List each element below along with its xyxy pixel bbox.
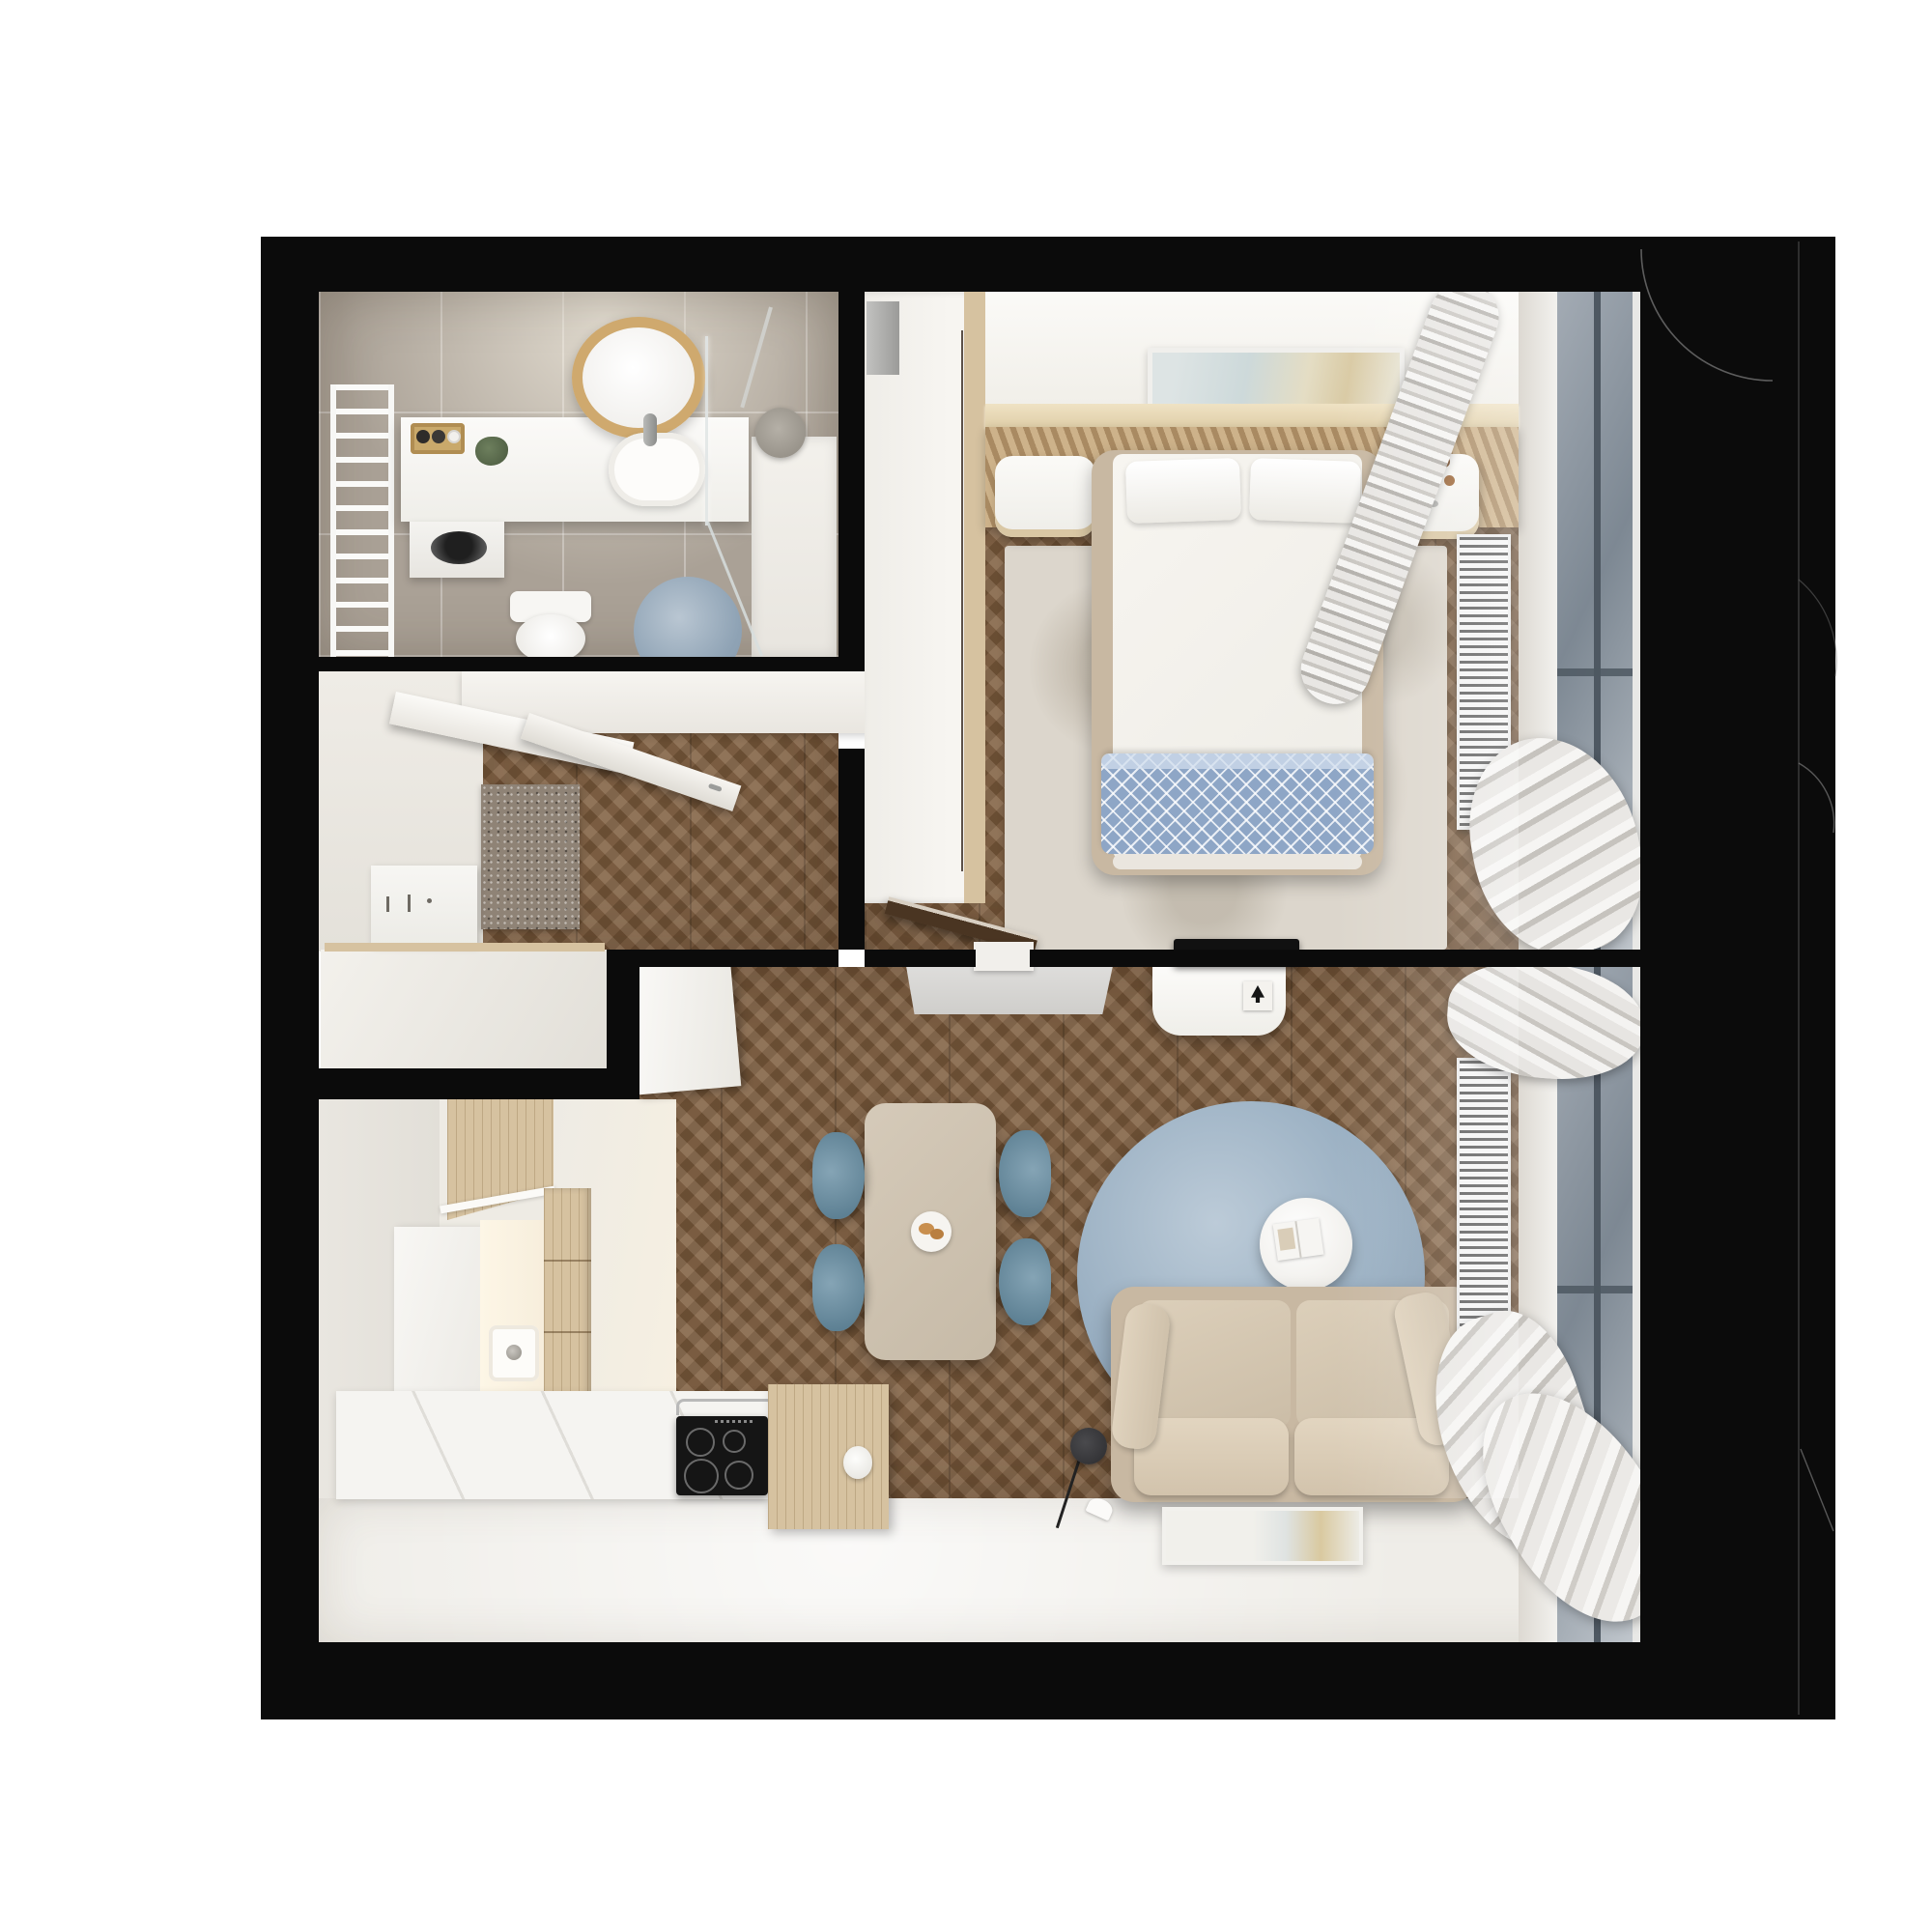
door-handle: [708, 783, 723, 792]
doormat: [481, 784, 580, 929]
glass-screen: [705, 336, 708, 526]
pillow-left: [1125, 458, 1241, 524]
towel-radiator: [330, 384, 394, 665]
burner: [686, 1428, 715, 1457]
kitchen-tall-cabinet: [394, 1227, 483, 1410]
kitchen-sink: [489, 1325, 539, 1381]
basin-sink: [609, 433, 705, 506]
wall-closet-bottom: [261, 1068, 639, 1099]
floor-lamp: [1070, 1428, 1107, 1464]
wall-interior-b: [865, 950, 976, 967]
drawer-seam: [544, 1260, 591, 1262]
figurine: [1251, 985, 1264, 1003]
magazine-fold: [1294, 1221, 1301, 1258]
cooktop: [676, 1416, 768, 1495]
sofa: [1111, 1287, 1476, 1502]
shower-head: [755, 408, 806, 458]
wall-top: [261, 237, 1835, 292]
console-oak-strip: [325, 943, 605, 952]
tv-console: [1152, 966, 1286, 1036]
nightstand-left: [995, 456, 1095, 537]
shower-tray: [752, 437, 837, 657]
window-mullion: [1557, 1286, 1640, 1293]
wall-bathroom-bedroom: [838, 292, 865, 671]
wardrobe-bracket: [867, 301, 899, 375]
wall-interior-c: [1030, 950, 1640, 967]
wardrobe-seam: [961, 330, 963, 871]
washer-drum: [431, 531, 487, 564]
book-stack: [1243, 981, 1272, 1010]
rolled-towel: [416, 430, 430, 443]
wardrobe-oak-edge: [964, 292, 985, 903]
living-radiator: [1457, 1058, 1511, 1336]
dining-chair: [999, 1130, 1051, 1217]
blue-throw: [1101, 753, 1374, 854]
console-handle: [408, 895, 411, 912]
wall-bathroom-bottom: [319, 657, 865, 671]
washing-machine: [410, 522, 504, 578]
bedroom-door-jamb: [974, 942, 1034, 971]
kitchen-faucet: [506, 1345, 522, 1360]
dining-chair: [812, 1132, 865, 1219]
cooktop-controls: [715, 1420, 753, 1423]
burner: [723, 1430, 746, 1453]
wall-hall-bedroom: [838, 749, 865, 950]
wall-right-block: [1640, 237, 1835, 1719]
centerpiece-plate: [911, 1211, 952, 1252]
magazine: [1273, 1218, 1324, 1261]
entry-console: [371, 866, 477, 945]
closet-room: [321, 950, 607, 1068]
burner: [724, 1461, 753, 1490]
drawer-seam: [544, 1331, 591, 1333]
wall-interior-a: [607, 950, 838, 967]
sofa-seat-cushion: [1134, 1418, 1289, 1495]
magazine-photo: [1277, 1228, 1295, 1251]
wardrobe: [865, 292, 985, 903]
croissant: [930, 1229, 944, 1239]
wall-left: [261, 237, 319, 1719]
towel-shelf: [411, 423, 465, 454]
pillow-right: [1249, 458, 1361, 524]
faucet: [643, 413, 657, 446]
wall-bottom: [261, 1642, 1835, 1719]
bath-rug: [634, 577, 742, 657]
living-door-leaf: [626, 957, 741, 1095]
cooktop-handle: [676, 1399, 775, 1415]
floor-plan-stage: [0, 0, 1932, 1932]
rolled-towel: [432, 430, 445, 443]
bottom-white-floor: [319, 1498, 1640, 1642]
throw-fold: [1101, 753, 1374, 769]
kitchen-wood-block: [768, 1384, 889, 1529]
dining-table: [865, 1103, 996, 1360]
dried-flower: [1444, 475, 1455, 486]
coffee-table: [1260, 1198, 1352, 1291]
kettle: [843, 1446, 872, 1479]
rolled-towel: [447, 430, 461, 443]
burner: [684, 1459, 719, 1493]
leaning-picture: [1162, 1507, 1363, 1565]
dining-chair: [812, 1244, 865, 1331]
dining-chair: [999, 1238, 1051, 1325]
round-mirror: [572, 317, 705, 439]
wall-shelf: [906, 966, 1113, 1014]
console-handle: [386, 896, 389, 912]
console-knob: [427, 898, 432, 903]
toilet-bowl: [516, 614, 585, 663]
kitchen-drawer-cabinet: [544, 1188, 591, 1406]
window-mullion: [1557, 668, 1640, 676]
sheet-fold: [1113, 854, 1362, 869]
